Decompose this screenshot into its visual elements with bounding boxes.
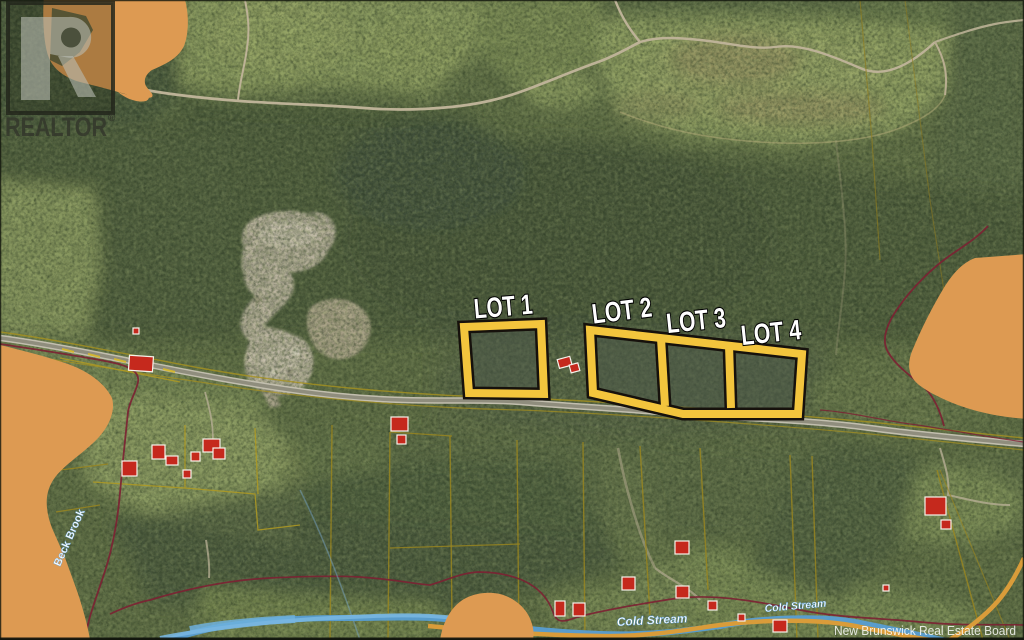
svg-text:LOT 1: LOT 1 — [473, 290, 534, 326]
svg-text:REALTOR: REALTOR — [5, 112, 107, 142]
svg-text:New Brunswick Real Estate Boar: New Brunswick Real Estate Board — [834, 623, 1016, 638]
svg-text:LOT 3: LOT 3 — [665, 303, 727, 340]
svg-text:®: ® — [108, 113, 116, 124]
svg-text:LOT 4: LOT 4 — [739, 314, 802, 352]
